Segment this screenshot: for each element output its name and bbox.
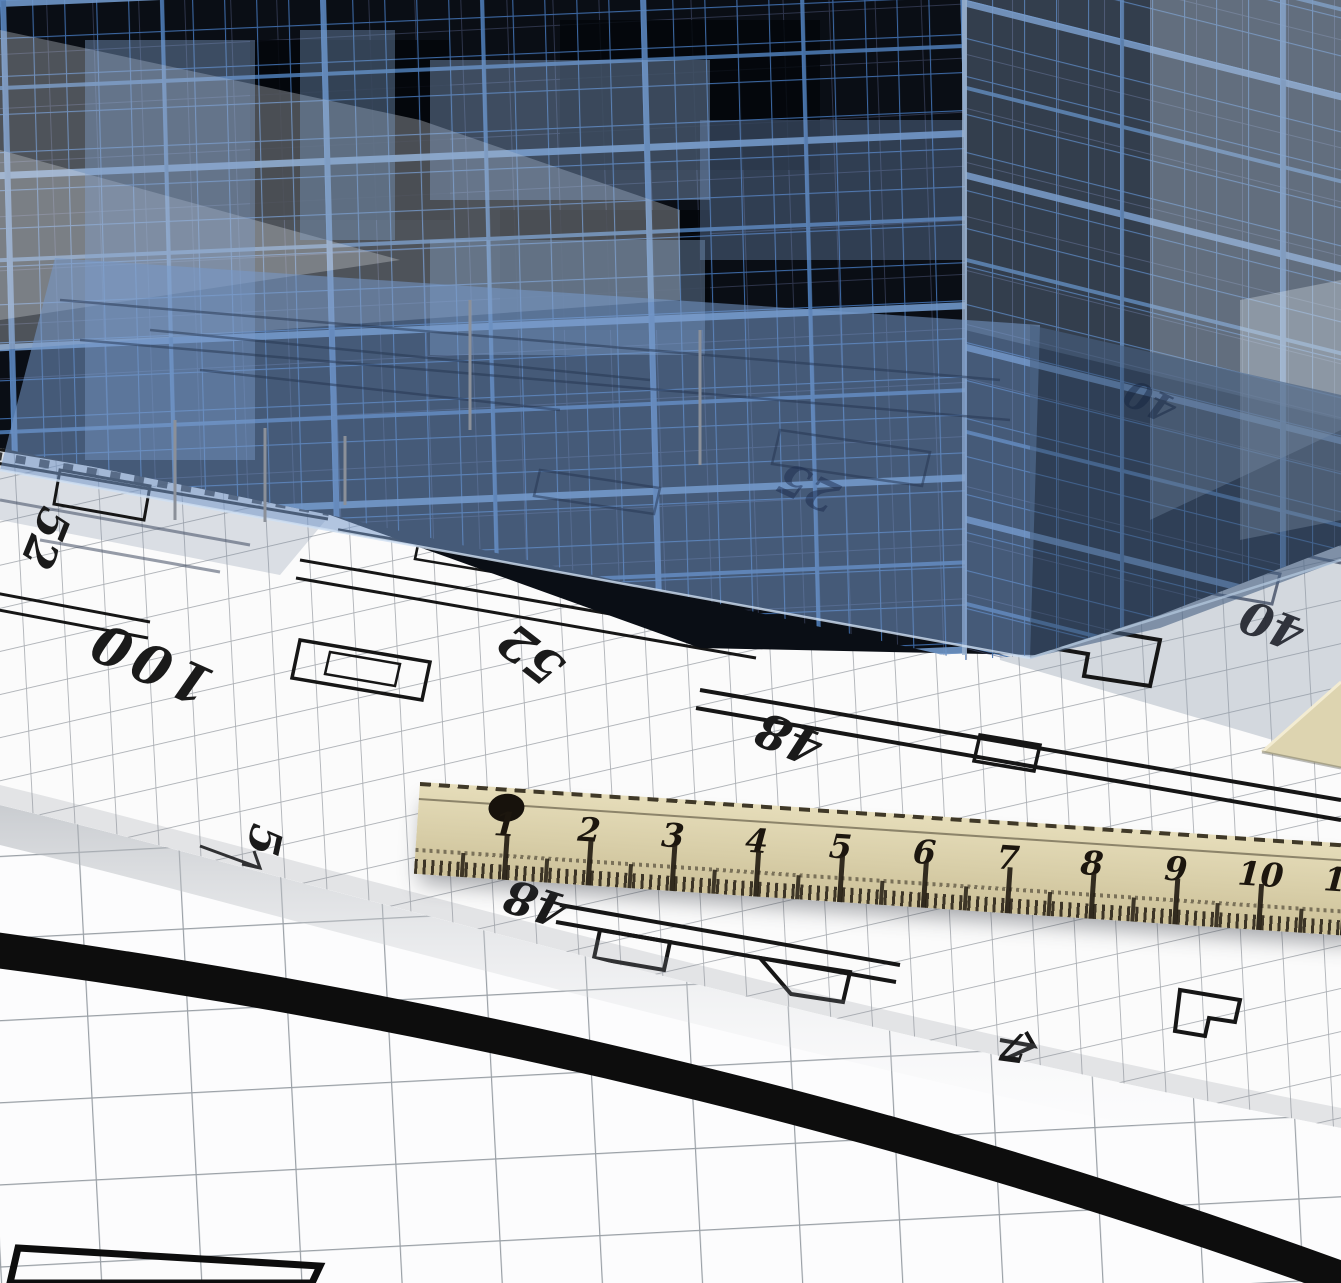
scene-graphics — [0, 0, 1341, 1283]
plan-label-7: 7 — [997, 1024, 1030, 1067]
ruler-number: 10 — [1237, 856, 1279, 892]
blueprint-scene: 52 100 52 48 48 5 7 25 40 40 1 2 3 4 5 6… — [0, 0, 1341, 1283]
ruler-number: 11 — [1322, 862, 1341, 898]
